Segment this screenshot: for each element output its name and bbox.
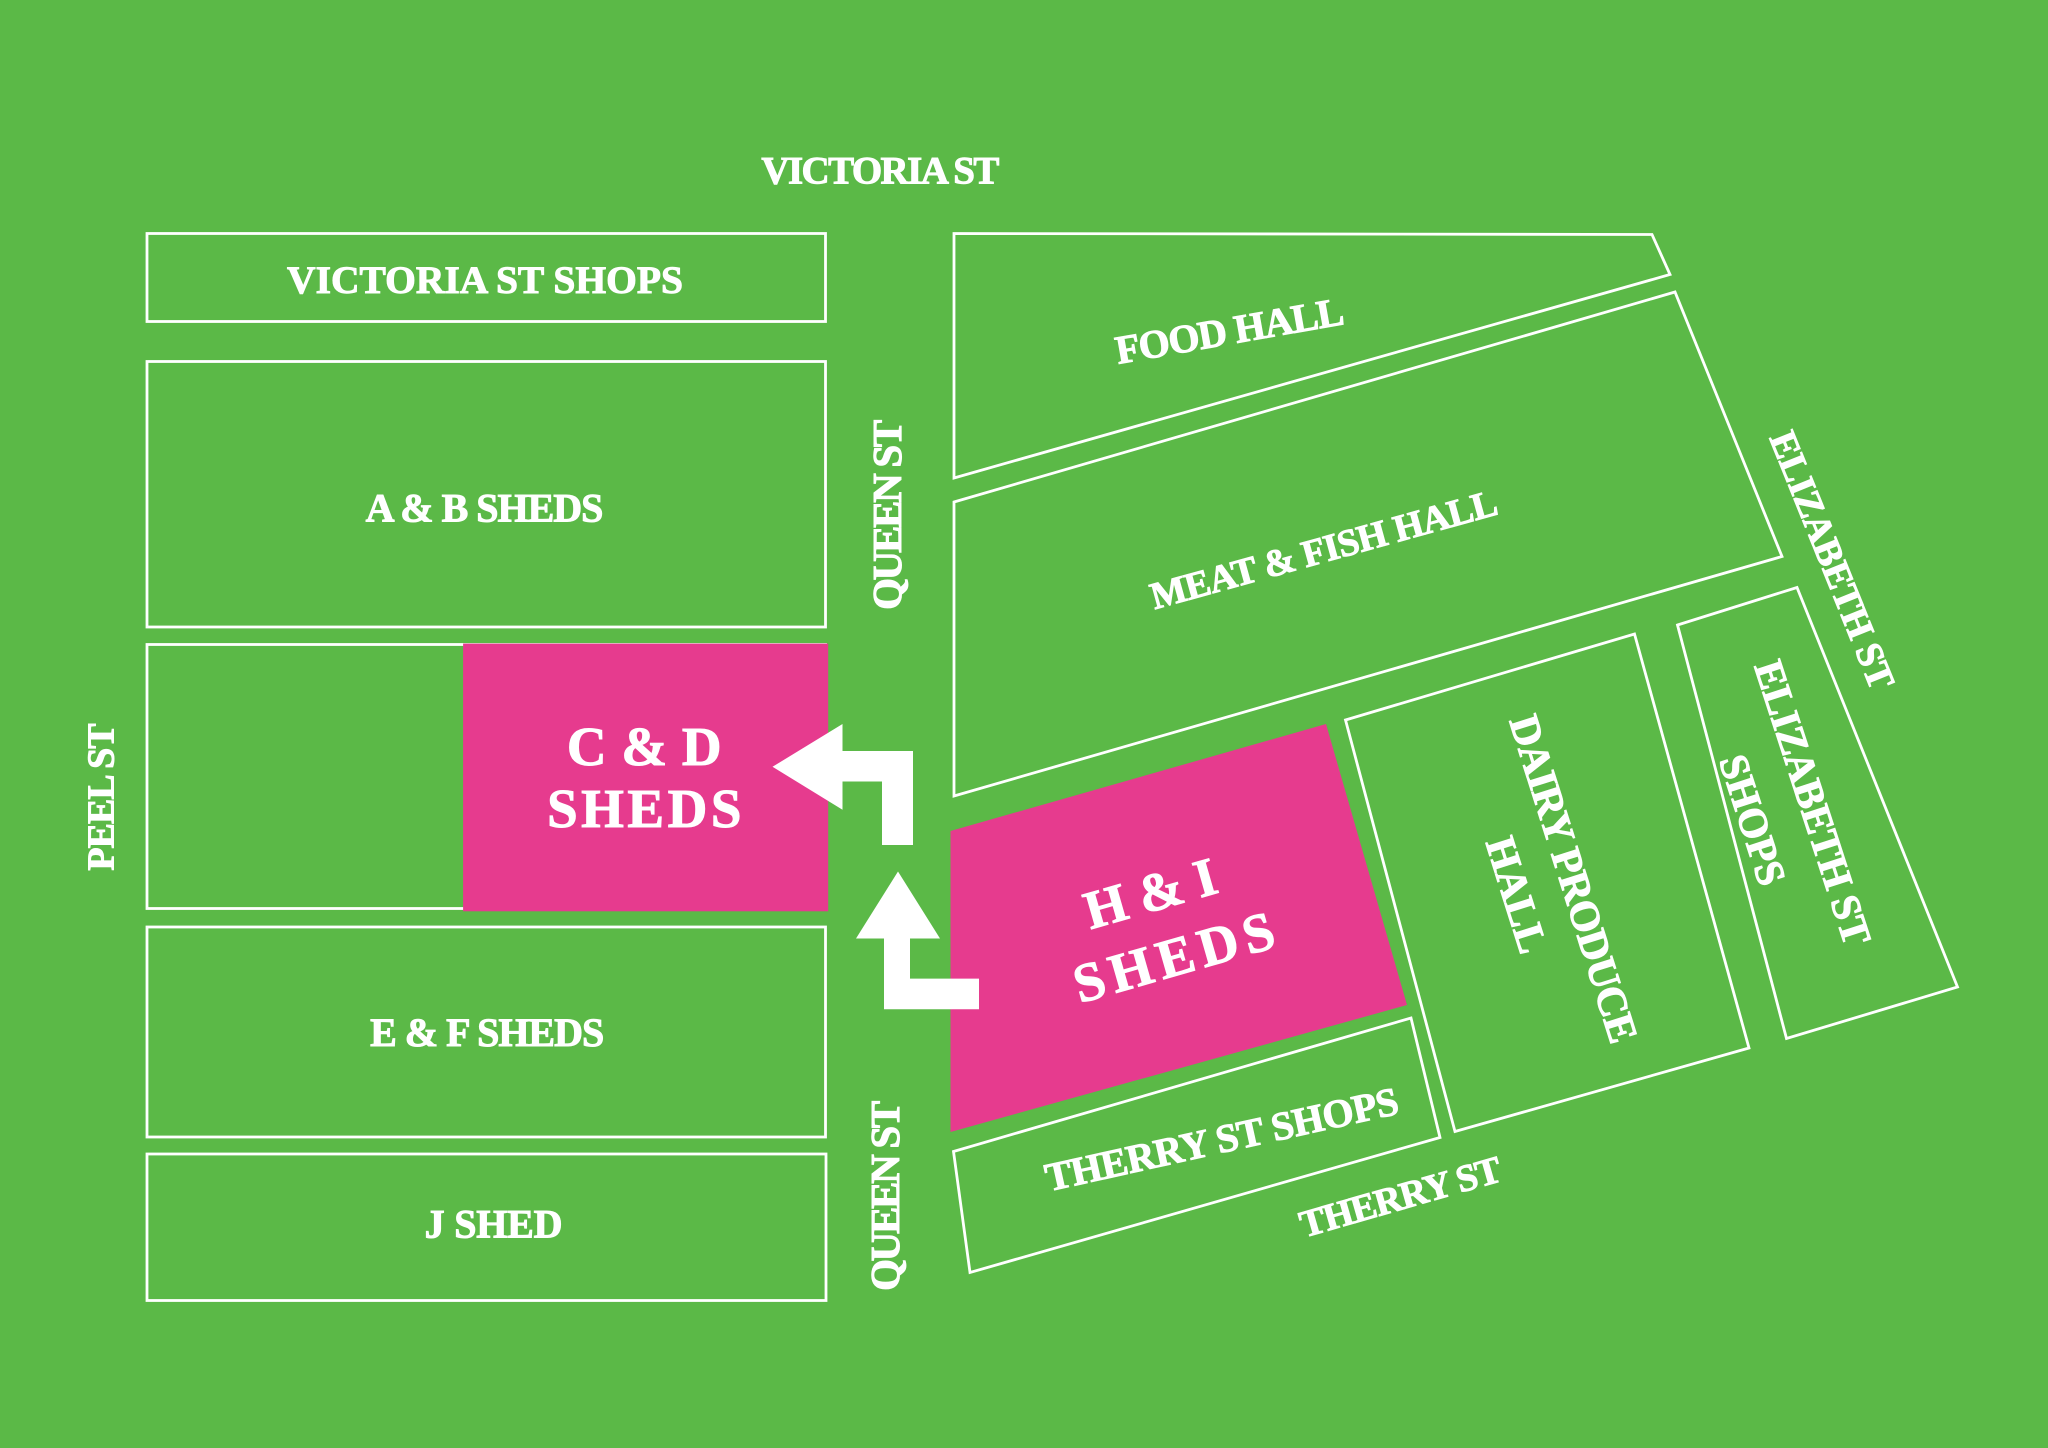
svg-text:VICTORIA ST: VICTORIA ST [761, 150, 999, 193]
svg-text:E & F SHEDS: E & F SHEDS [370, 1010, 603, 1055]
svg-text:PEEL ST: PEEL ST [80, 724, 122, 871]
svg-text:QUEEN ST: QUEEN ST [862, 1101, 908, 1291]
svg-text:J SHED: J SHED [425, 1202, 563, 1247]
svg-text:SHEDS: SHEDS [547, 778, 745, 839]
svg-text:VICTORIA ST SHOPS: VICTORIA ST SHOPS [287, 258, 683, 302]
svg-text:C & D: C & D [567, 716, 722, 777]
svg-text:QUEEN ST: QUEEN ST [864, 420, 910, 610]
svg-text:A & B SHEDS: A & B SHEDS [366, 486, 603, 531]
